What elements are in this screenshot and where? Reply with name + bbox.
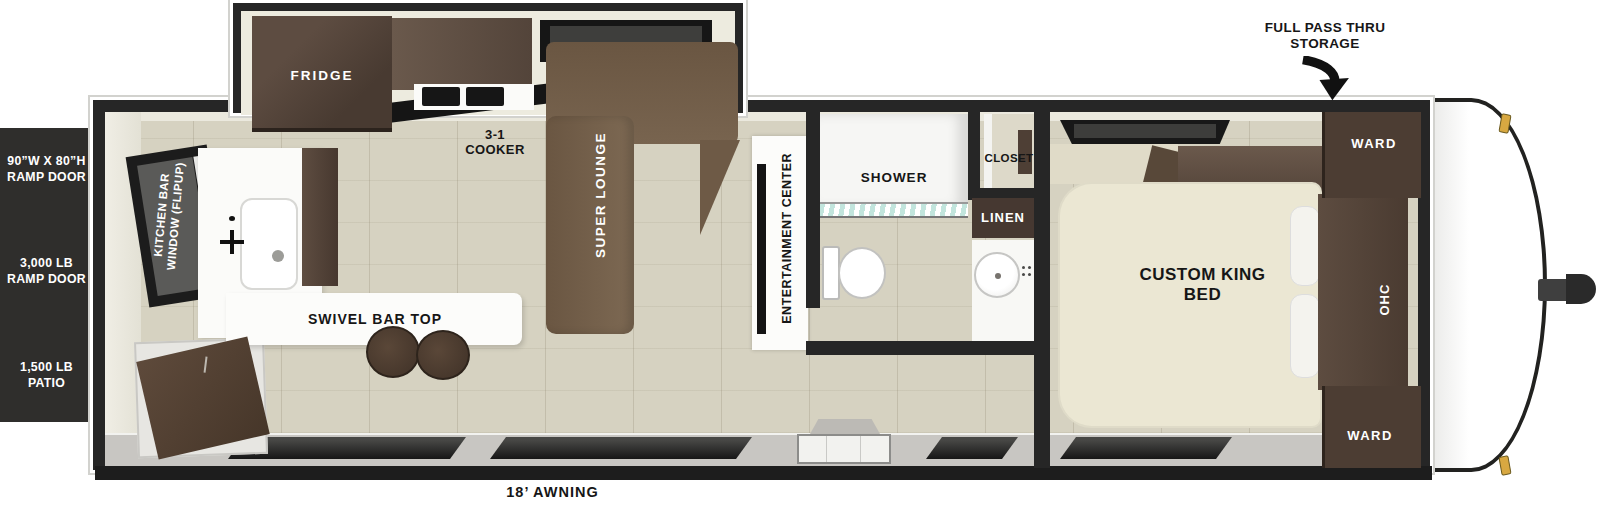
door-line [826, 436, 827, 462]
ward-bottom-label: WARD [1310, 428, 1430, 443]
bathroom-vanity [972, 240, 1034, 341]
closet [984, 114, 1034, 188]
ward-top-label: WARD [1326, 136, 1422, 151]
pillow [1290, 294, 1320, 378]
front-cap [1425, 98, 1547, 472]
wardrobe-bottom [1322, 386, 1421, 468]
awning-bar [95, 466, 1432, 480]
floorplan-canvas: 90”W X 80”H RAMP DOOR 3,000 LB RAMP DOOR… [0, 0, 1600, 507]
marker-light-icon [1498, 455, 1511, 475]
entertainment-label: ENTERTAINMENT CENTER [737, 138, 837, 338]
curved-arrow-icon [1296, 56, 1354, 102]
window [926, 437, 1018, 459]
fridge-label: FRIDGE [252, 68, 392, 84]
rear-ramp-door-panel: 90”W X 80”H RAMP DOOR 3,000 LB RAMP DOOR… [0, 128, 93, 422]
stitch-mark [204, 357, 208, 373]
window [490, 437, 752, 459]
faucet-icon [230, 230, 234, 254]
swivel-bar-label: SWIVEL BAR TOP [247, 311, 503, 328]
bedroom-window [1060, 120, 1230, 144]
burner-icon [422, 87, 460, 106]
closet-label: CLOSET [966, 152, 1052, 166]
sink-drain-icon [995, 273, 1001, 279]
ramp-door-capacity-label: 3,000 LB RAMP DOOR [0, 256, 93, 288]
wardrobe-top [1322, 112, 1421, 198]
faucet-icon [1022, 266, 1025, 269]
faucet-handle-icon [229, 216, 235, 221]
sink-drain-icon [272, 250, 284, 262]
awning-label: 18’ AWNING [490, 484, 615, 501]
entry-step [810, 419, 880, 434]
pantry-cabinet [302, 148, 338, 286]
bathroom-wall [806, 341, 1050, 355]
kitchen-sink [240, 198, 298, 290]
shower-glass [820, 202, 968, 218]
bar-stool-icon [366, 326, 420, 378]
shower [820, 114, 968, 208]
ramp-door-size-label: 90”W X 80”H RAMP DOOR [0, 154, 93, 186]
super-lounge-label: SUPER LOUNGE [551, 95, 651, 295]
patio-capacity-label: 1,500 LB PATIO [0, 360, 93, 392]
linen-label: LINEN [972, 210, 1034, 225]
burner-icon [466, 87, 504, 106]
door-line [860, 436, 861, 462]
entry-door [797, 434, 891, 464]
bar-stool-icon [416, 330, 470, 380]
king-bed-label: CUSTOM KING BED [1130, 265, 1275, 305]
sink-bowl-icon [974, 252, 1020, 298]
overhead-cabinet [392, 18, 532, 90]
pillow [1290, 206, 1320, 286]
bedroom-window [1060, 437, 1232, 459]
shower-label: SHOWER [820, 170, 968, 186]
hitch-coupler-icon [1566, 274, 1596, 304]
kitchen-window-label: KITCHEN BAR WINDOW (FLIPUP) [109, 156, 229, 276]
fridge-label-text: FRIDGE [290, 68, 353, 83]
closet-wall-face [984, 114, 992, 188]
window-glass [1074, 124, 1216, 138]
cooker-label: 3-1 COOKER [455, 127, 535, 158]
ohc-label: OHC [1360, 260, 1410, 340]
pass-thru-storage-label: FULL PASS THRU STORAGE [1235, 20, 1415, 52]
toilet-icon [838, 247, 886, 299]
